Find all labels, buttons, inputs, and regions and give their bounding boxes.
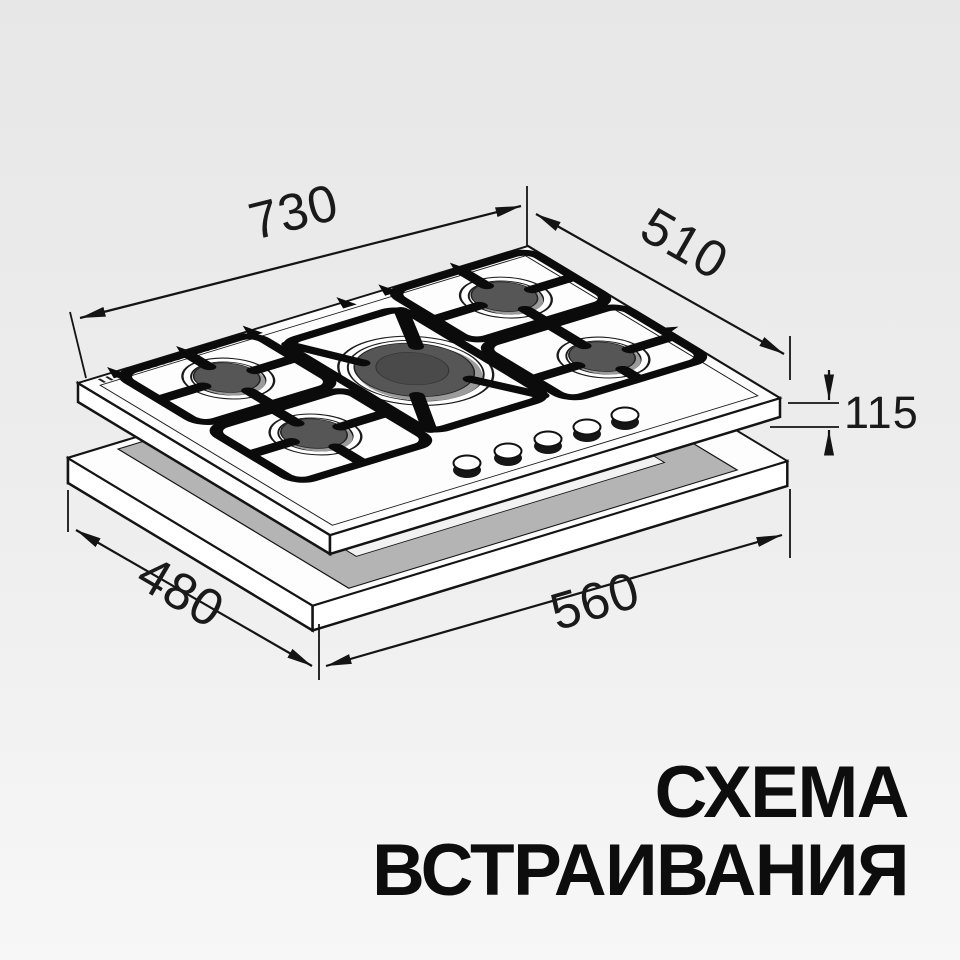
control-knob: [453, 456, 481, 479]
control-knob: [494, 444, 522, 467]
page-title-line2: ВСТРАИВАНИЯ: [372, 830, 908, 911]
installation-diagram: 730 510 115 560 480 СХЕМА ВСТРАИВАНИЯ: [0, 0, 960, 960]
page-title-line1: СХЕМА: [655, 752, 908, 833]
label-hob-width: 730: [243, 173, 344, 251]
control-knob: [611, 408, 639, 431]
control-knob: [573, 420, 601, 443]
control-knob: [534, 432, 562, 455]
label-hob-height: 115: [844, 387, 919, 438]
label-cutout-width: 560: [544, 561, 646, 642]
installation-scheme-page: 730 510 115 560 480 СХЕМА ВСТРАИВАНИЯ: [0, 0, 960, 960]
